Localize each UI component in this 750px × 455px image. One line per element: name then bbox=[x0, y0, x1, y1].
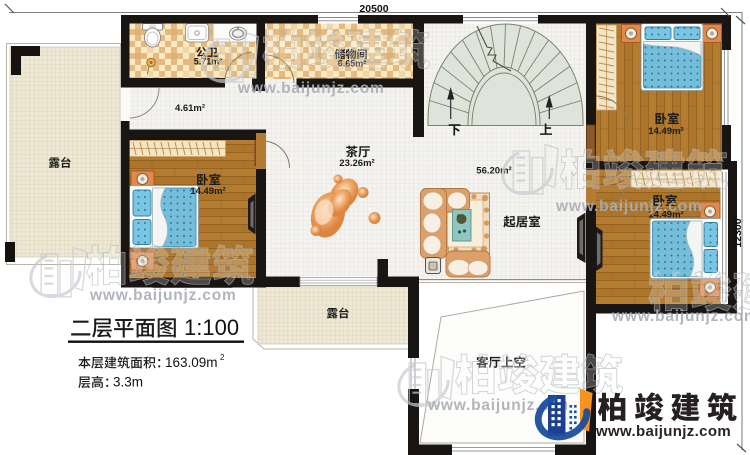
svg-text:2: 2 bbox=[220, 353, 225, 362]
svg-text:20500: 20500 bbox=[359, 3, 388, 15]
svg-text:www.baijunjz.com: www.baijunjz.com bbox=[89, 287, 237, 304]
svg-text:3.3m: 3.3m bbox=[113, 375, 143, 390]
svg-text:www.baijunjz.com: www.baijunjz.com bbox=[237, 80, 385, 97]
svg-text:1:100: 1:100 bbox=[184, 315, 239, 340]
svg-text:56.20m²: 56.20m² bbox=[476, 166, 511, 177]
svg-text:23.26m²: 23.26m² bbox=[339, 158, 374, 169]
svg-text:12300: 12300 bbox=[732, 218, 744, 247]
svg-text:www.baijunjz.com: www.baijunjz.com bbox=[595, 423, 731, 440]
svg-text:4.61m²: 4.61m² bbox=[175, 103, 205, 114]
svg-text:163.09m: 163.09m bbox=[165, 355, 218, 370]
svg-text:www.baijunjz.com: www.baijunjz.com bbox=[611, 308, 750, 325]
svg-text:www.baijunjz.com: www.baijunjz.com bbox=[555, 198, 703, 215]
svg-text:14.49m²: 14.49m² bbox=[648, 126, 683, 137]
svg-text:14.49m²: 14.49m² bbox=[190, 186, 225, 197]
